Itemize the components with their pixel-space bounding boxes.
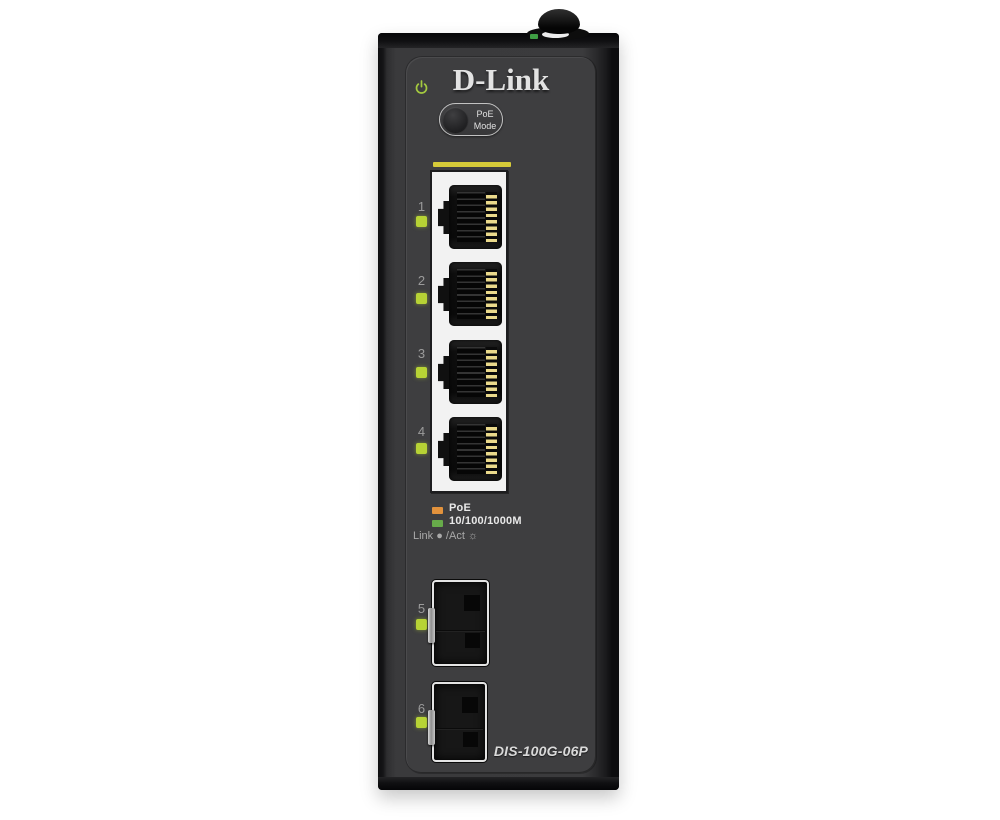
legend-speed-label: 10/100/1000M [449,515,522,527]
rj45-gold-pins [486,347,497,397]
rj45-slots [457,192,485,242]
port-3-led [416,367,427,378]
port-5-number: 5 [414,601,429,616]
legend-poe-label: PoE [449,502,471,514]
port-1-led [416,216,427,227]
brand-logo: D-Link [406,62,596,98]
sfp-cage-seam [436,630,485,632]
sfp-bay-opening [465,633,480,648]
sfp-latch [428,608,435,643]
sfp-cage-seam [436,728,483,730]
rj45-port-1 [438,185,504,250]
rj45-slots [457,424,485,474]
sfp-port-5 [432,580,489,666]
rj45-port-2 [438,262,504,327]
port-2-led [416,293,427,304]
rj45-jack [449,262,502,326]
sfp-bay-opening [464,595,480,611]
sfp-bay-opening [463,732,478,747]
rj45-jack [449,185,502,249]
rj45-gold-pins [486,269,497,319]
port-6-led [416,717,427,728]
grounding-screw-knob [527,9,589,40]
port-2-number: 2 [414,273,429,288]
sfp-latch [428,710,435,745]
rj45-gold-pins [486,424,497,474]
rj45-jack [449,340,502,404]
product-photo-switch: D-Link PoE Mode [0,0,1000,820]
yellow-accent-bar [433,162,511,167]
link-act-label: Link ● /Act ☼ [413,530,478,542]
rj45-port-4 [438,417,504,482]
rj45-port-block [430,170,508,493]
poe-mode-button[interactable]: PoE Mode [439,103,503,136]
chassis-bottom-edge [378,777,619,790]
legend-speed-swatch [432,520,443,527]
model-number-label: DIS-100G-06P [488,743,594,759]
port-1-number: 1 [414,199,429,214]
rj45-port-3 [438,340,504,405]
sfp-port-6 [432,682,487,762]
port-6-number: 6 [414,701,429,716]
rj45-gold-pins [486,192,497,242]
terminal-block-green [530,34,538,39]
poe-mode-button-label: PoE Mode [471,108,499,132]
port-3-number: 3 [414,346,429,361]
port-5-led [416,619,427,630]
sfp-bay-opening [462,697,478,713]
rj45-slots [457,347,485,397]
port-4-led [416,443,427,454]
knob-cap [538,9,580,34]
rj45-jack [449,417,502,481]
rj45-slots [457,269,485,319]
legend-poe-swatch [432,507,443,514]
poe-mode-button-cap[interactable] [443,107,468,132]
port-4-number: 4 [414,424,429,439]
